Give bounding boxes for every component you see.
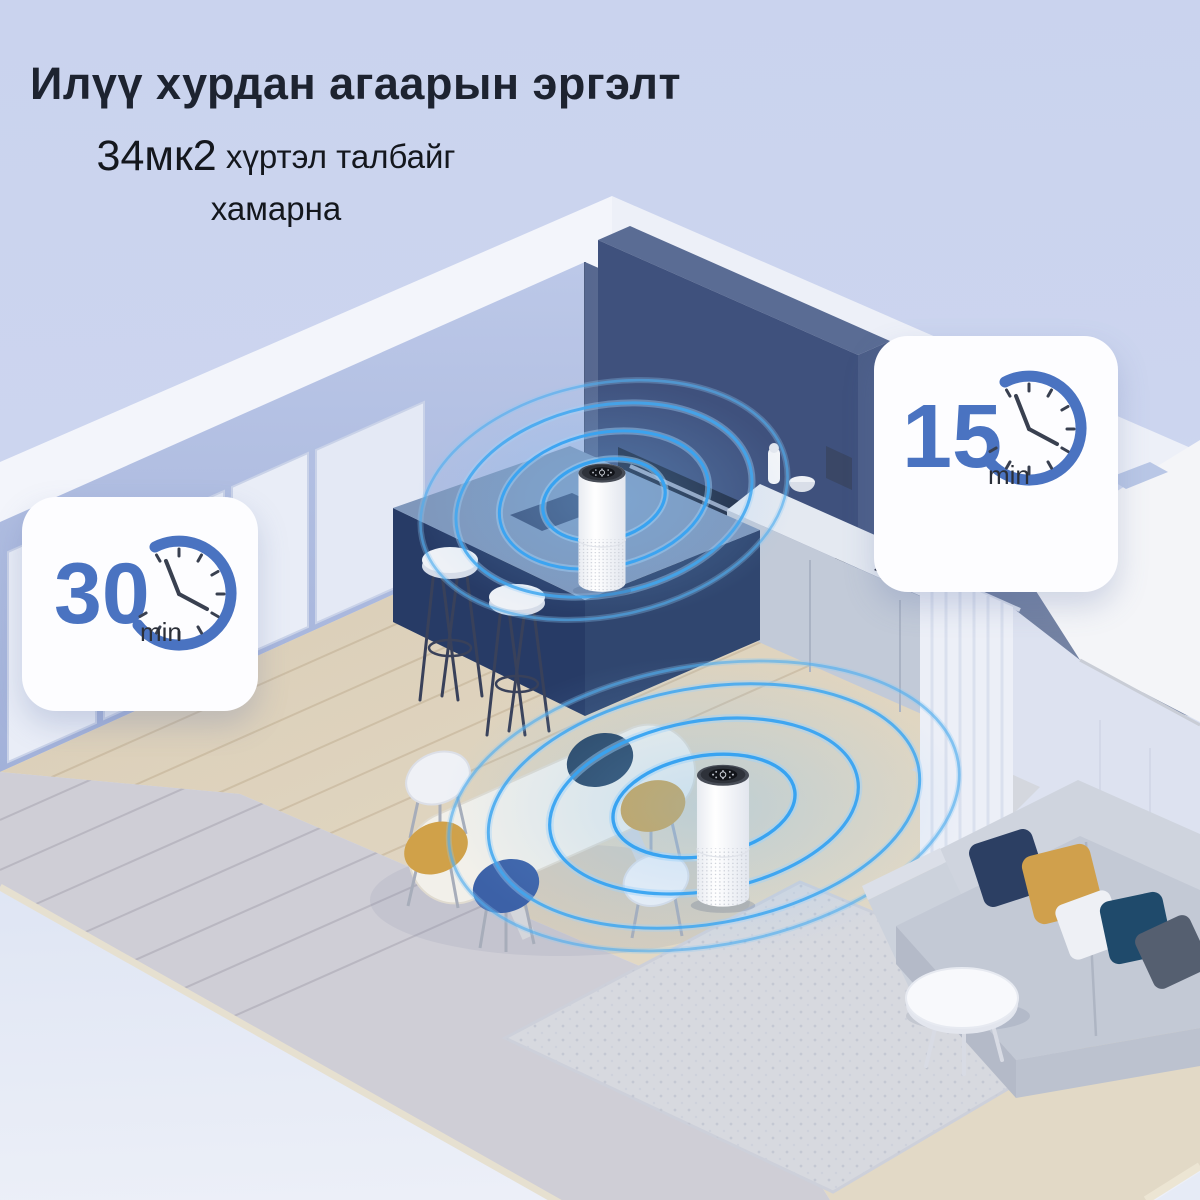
product-banner: Илүү хурдан агаарын эргэлт 34мк2 хүртэл … (0, 0, 1200, 1200)
air-purifier-kitchen (573, 464, 631, 598)
coverage-text: хүртэл талбайг (217, 138, 456, 175)
timer-unit: min (988, 460, 1030, 491)
subtitle-line1: 34мк2 хүртэл талбайг (66, 126, 486, 186)
timer-badge-30min: 30 min (22, 497, 258, 711)
subtitle-line2: хамарна (66, 186, 486, 232)
page-title: Илүү хурдан агаарын эргэлт (30, 58, 730, 110)
timer-unit: min (140, 617, 182, 648)
coverage-value: 34мк2 (97, 132, 217, 180)
air-purifier-living (691, 765, 755, 913)
page-subtitle: 34мк2 хүртэл талбайг хамарна (66, 126, 486, 232)
timer-badge-15min: 15 min (874, 336, 1118, 592)
